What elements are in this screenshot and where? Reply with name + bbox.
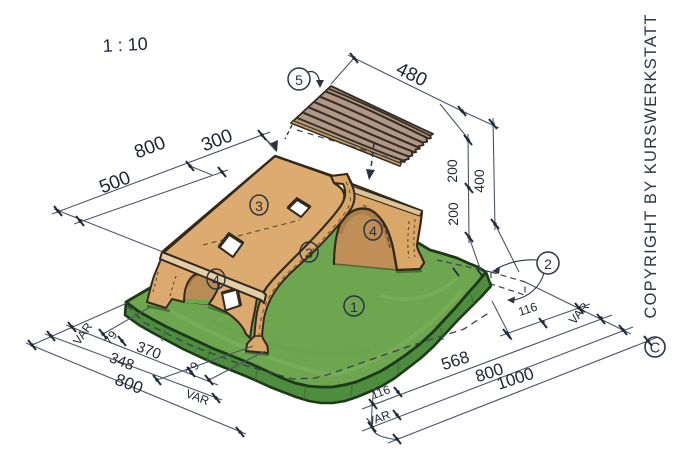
svg-text:3: 3 (255, 198, 263, 214)
svg-text:4: 4 (369, 223, 377, 239)
svg-text:1: 1 (350, 299, 358, 315)
svg-text:4: 4 (212, 272, 220, 288)
svg-text:C: C (650, 341, 660, 357)
svg-text:2: 2 (544, 256, 552, 272)
svg-text:200: 200 (444, 159, 460, 183)
svg-text:COPYRIGHT BY KURSWERKSTATT: COPYRIGHT BY KURSWERKSTATT (642, 13, 660, 318)
svg-text:1 : 10: 1 : 10 (102, 34, 148, 56)
svg-text:400: 400 (471, 169, 487, 193)
svg-text:200: 200 (445, 202, 461, 226)
svg-text:3: 3 (305, 245, 313, 261)
svg-text:5: 5 (295, 72, 303, 88)
